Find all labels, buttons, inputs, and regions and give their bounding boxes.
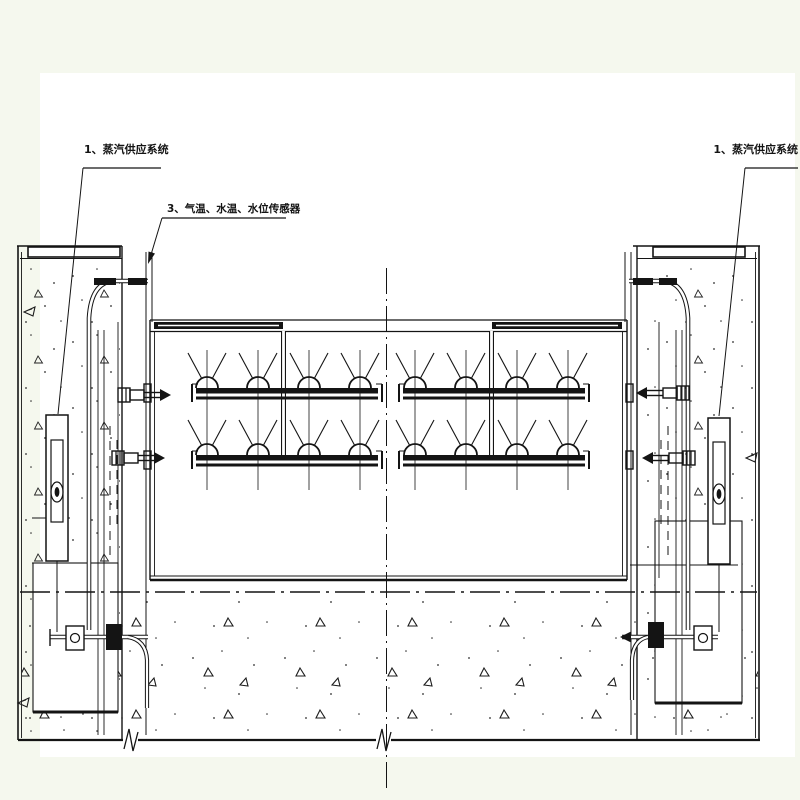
right-valve-body <box>694 626 712 650</box>
steam-header-right <box>492 322 622 329</box>
left-valve-body <box>66 626 84 650</box>
label-steam-supply-left: 1、蒸汽供应系统 <box>84 142 169 156</box>
label-sensors: 3、气温、水温、水位传感器 <box>167 202 301 215</box>
foundation-slab <box>18 598 760 751</box>
right-pier-cap <box>653 247 745 257</box>
left-fitting-block <box>106 624 122 650</box>
label-steam-supply-right: 1、蒸汽供应系统 <box>713 142 798 156</box>
gate-steam-heating-section-drawing: 1、蒸汽供应系统 3、气温、水温、水位传感器 1、蒸汽供应系统 <box>0 0 800 800</box>
steam-header-left <box>154 322 283 329</box>
right-fitting-block <box>648 622 664 648</box>
engineering-drawing-canvas: 1、蒸汽供应系统 3、气温、水温、水位传感器 1、蒸汽供应系统 <box>0 0 800 800</box>
